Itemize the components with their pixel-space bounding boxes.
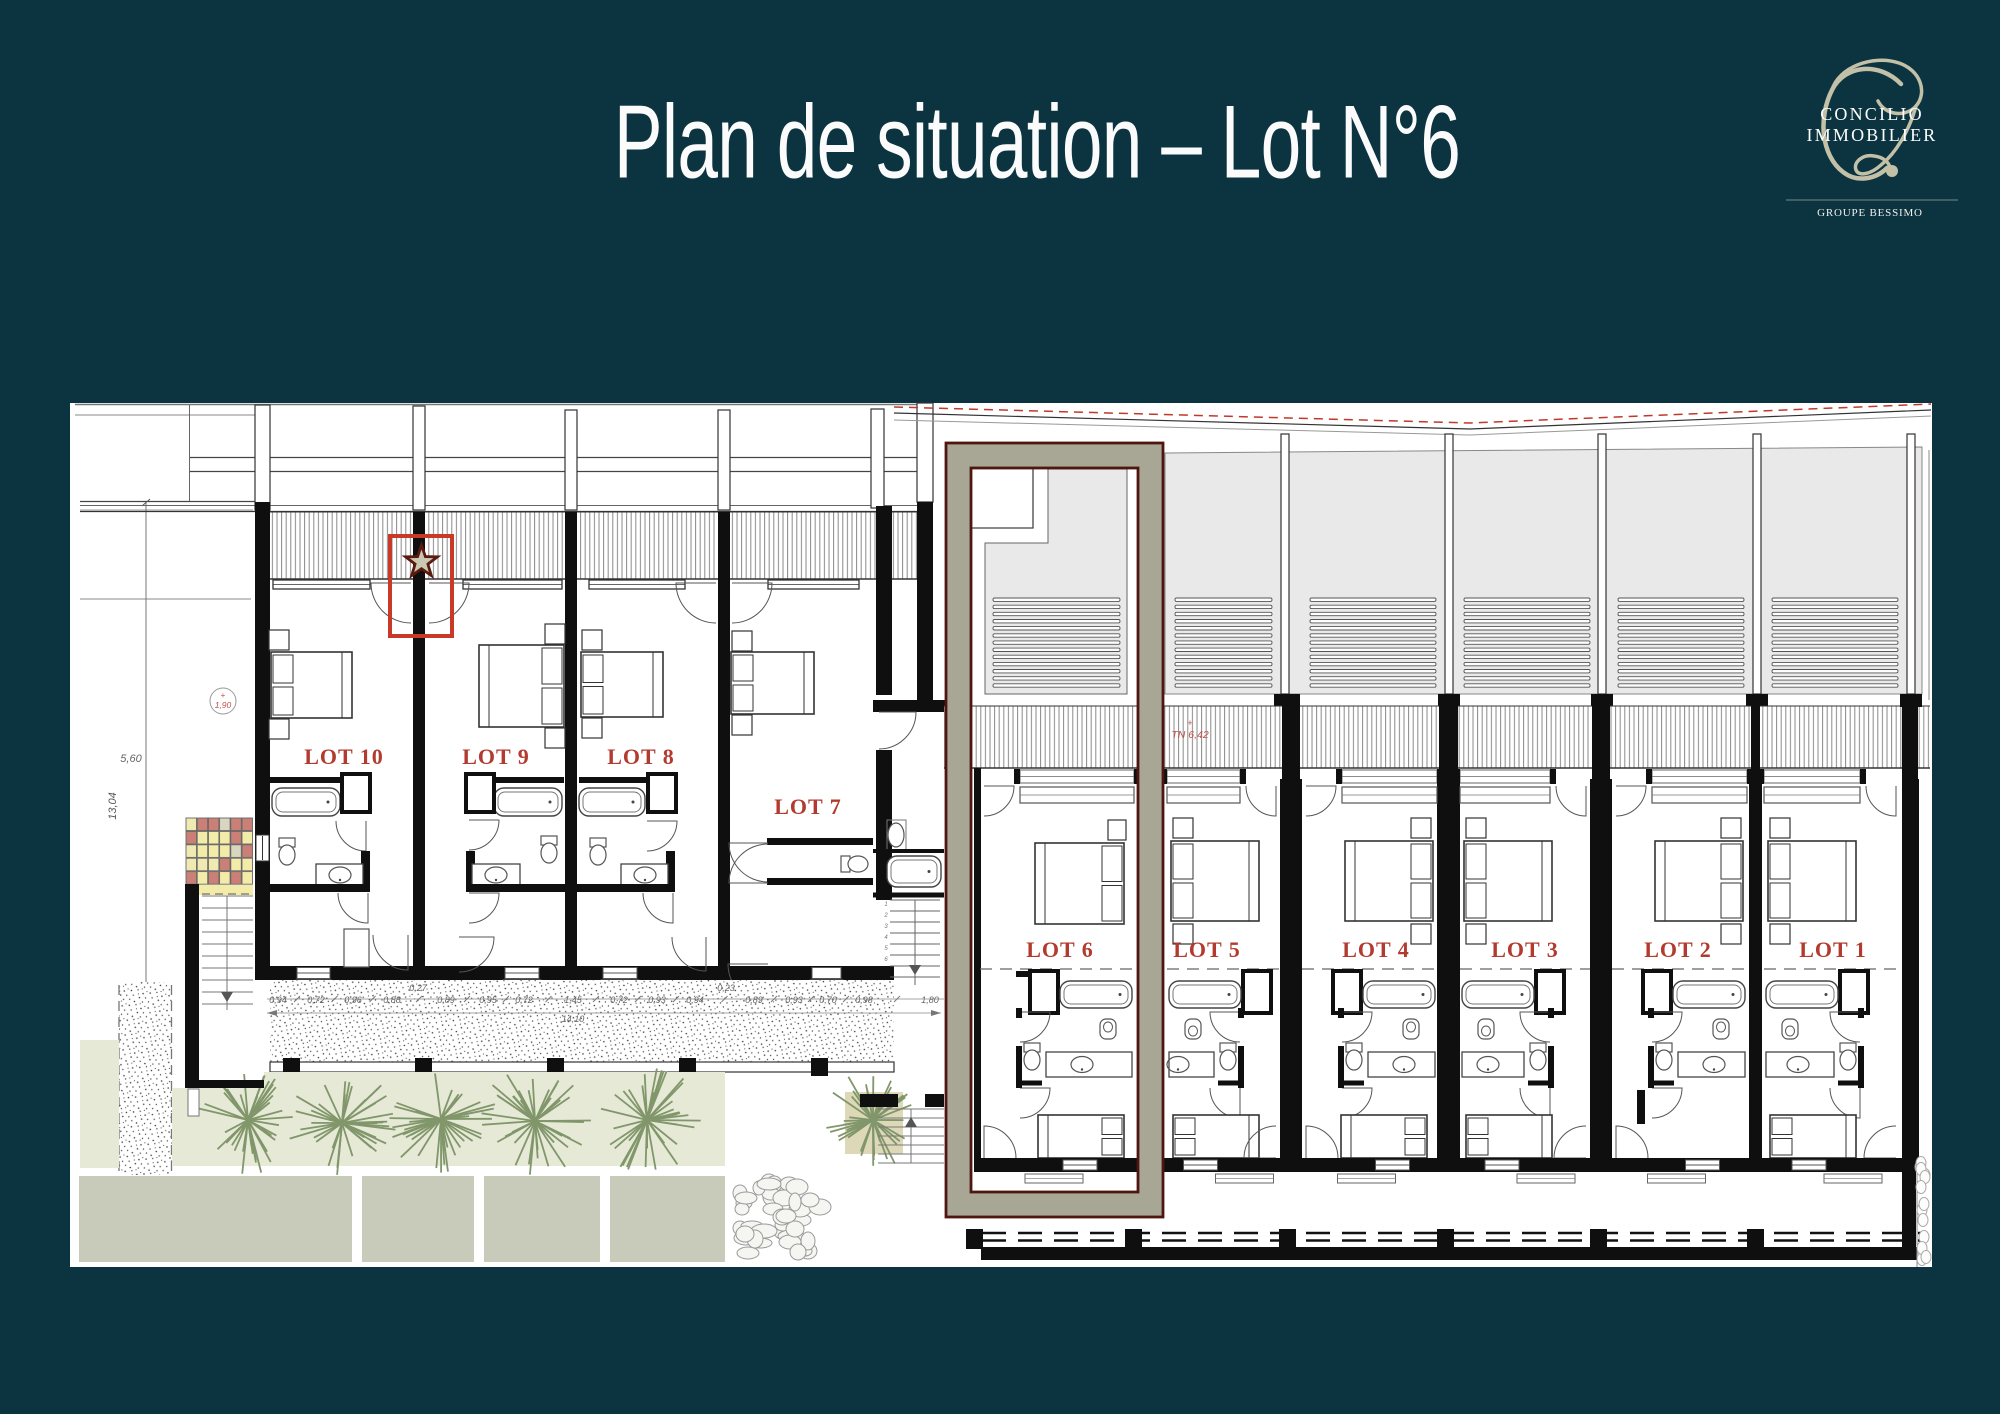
svg-text:LOT 5: LOT 5 (1173, 937, 1241, 962)
svg-text:5,60: 5,60 (120, 753, 142, 765)
svg-text:LOT 9: LOT 9 (462, 744, 530, 769)
svg-text:1,90: 1,90 (215, 700, 232, 710)
svg-text:LOT 6: LOT 6 (1026, 937, 1094, 962)
svg-text:LOT 1: LOT 1 (1799, 937, 1867, 962)
svg-text:LOT 10: LOT 10 (304, 744, 384, 769)
svg-text:1: 1 (884, 902, 887, 908)
svg-text:0,96: 0,96 (344, 995, 362, 1005)
svg-text:GROUPE BESSIMO: GROUPE BESSIMO (1817, 207, 1923, 219)
svg-text:0,94: 0,94 (686, 995, 704, 1005)
svg-text:1,45: 1,45 (564, 995, 583, 1005)
svg-text:0,89: 0,89 (745, 995, 763, 1005)
svg-text:1,80: 1,80 (921, 995, 939, 1005)
svg-text:0,95: 0,95 (479, 995, 498, 1005)
svg-text:0,72: 0,72 (610, 995, 628, 1005)
svg-text:0,72: 0,72 (515, 995, 533, 1005)
svg-text:0,27: 0,27 (409, 983, 428, 993)
svg-text:+: + (1187, 718, 1192, 728)
svg-text:LOT 2: LOT 2 (1644, 937, 1712, 962)
svg-text:14,10: 14,10 (562, 1014, 585, 1024)
svg-text:LOT 4: LOT 4 (1342, 937, 1410, 962)
svg-text:LOT 7: LOT 7 (774, 794, 842, 819)
svg-text:0,93: 0,93 (785, 995, 803, 1005)
svg-text:0,23: 0,23 (717, 983, 735, 993)
svg-text:Plan de situation – Lot N°6: Plan de situation – Lot N°6 (614, 85, 1460, 201)
svg-text:LOT 8: LOT 8 (607, 744, 675, 769)
svg-text:2: 2 (883, 913, 888, 919)
svg-text:0,72: 0,72 (307, 995, 325, 1005)
svg-text:+: + (221, 691, 226, 700)
svg-text:0,70: 0,70 (819, 995, 837, 1005)
svg-text:0,94: 0,94 (269, 995, 287, 1005)
svg-text:0,89: 0,89 (437, 995, 455, 1005)
svg-text:TN 6,42: TN 6,42 (1171, 729, 1209, 741)
svg-text:CONCILIO: CONCILIO (1820, 104, 1924, 124)
svg-text:0,88: 0,88 (383, 995, 401, 1005)
svg-text:0,93: 0,93 (648, 995, 666, 1005)
svg-text:13,04: 13,04 (107, 792, 119, 820)
svg-text:LOT 3: LOT 3 (1491, 937, 1559, 962)
svg-text:0,98: 0,98 (855, 995, 873, 1005)
svg-text:IMMOBILIER: IMMOBILIER (1807, 125, 1938, 145)
